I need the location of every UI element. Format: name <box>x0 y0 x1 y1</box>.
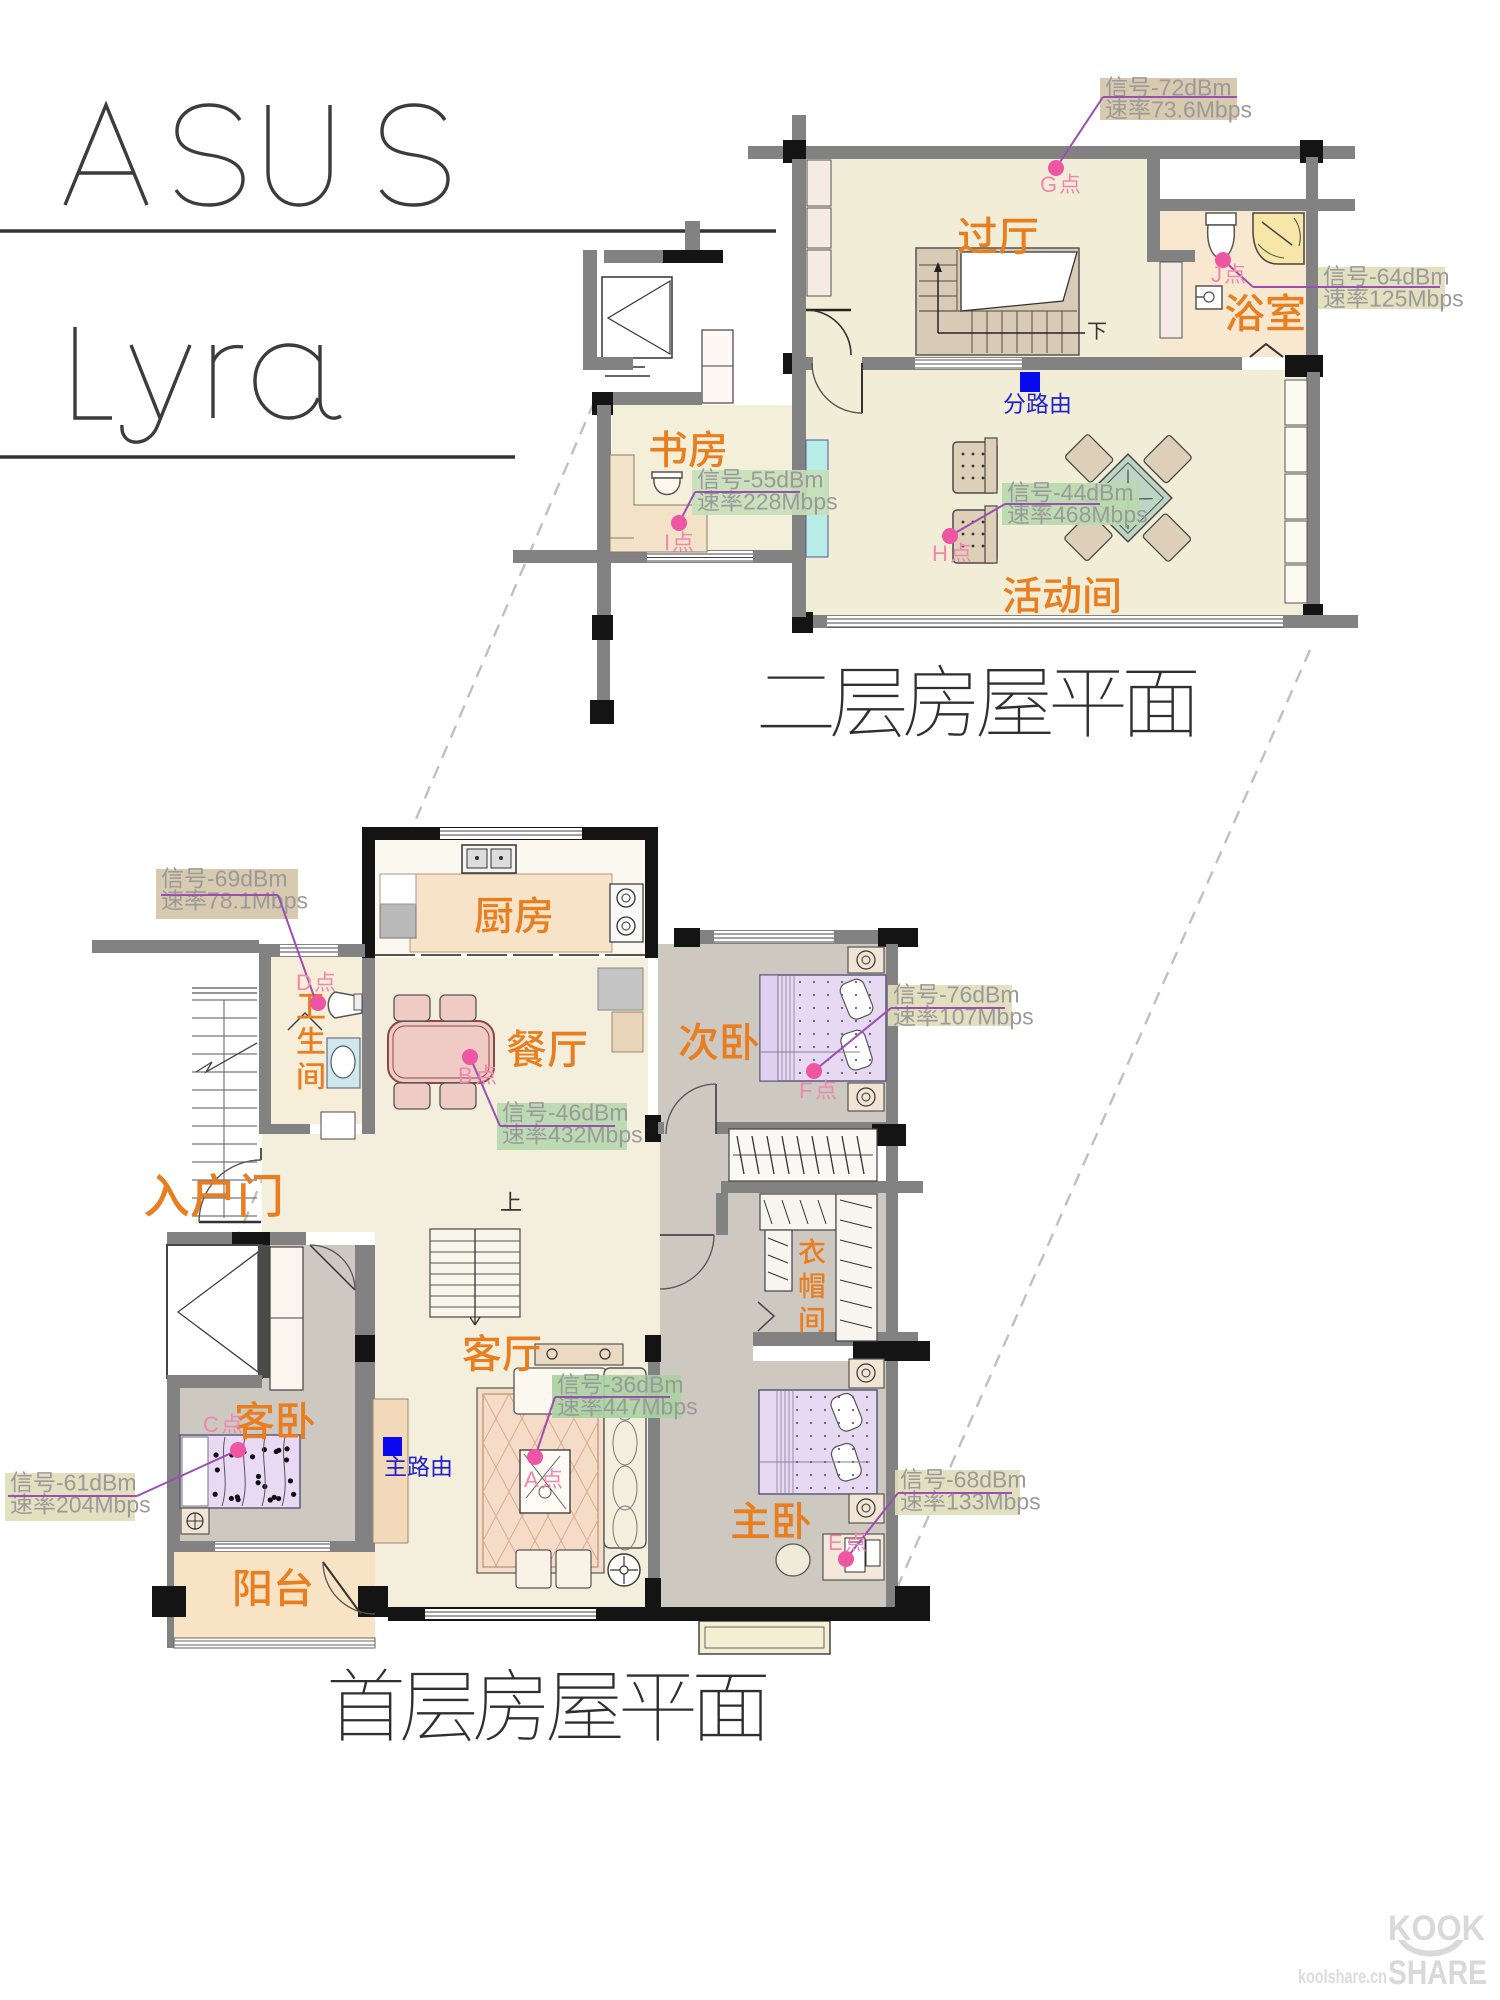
svg-text:468Mbps: 468Mbps <box>1053 502 1148 528</box>
svg-text:125Mbps: 125Mbps <box>1369 286 1464 312</box>
svg-text:B: B <box>458 1063 473 1088</box>
svg-text:78.1Mbps: 78.1Mbps <box>207 888 308 914</box>
svg-text:SHARE: SHARE <box>1388 1954 1487 1992</box>
svg-text:koolshare.cn: koolshare.cn <box>1298 1967 1387 1988</box>
svg-text:G: G <box>1040 172 1057 197</box>
svg-text:F: F <box>799 1078 812 1103</box>
svg-text:I: I <box>664 530 670 555</box>
svg-text:73.6Mbps: 73.6Mbps <box>1151 97 1252 123</box>
svg-text:J: J <box>1211 262 1222 287</box>
svg-text:E: E <box>828 1530 843 1555</box>
svg-text:C: C <box>203 1412 219 1437</box>
svg-text:H: H <box>932 541 948 566</box>
svg-text:A: A <box>524 1467 539 1492</box>
svg-text:D: D <box>296 970 312 995</box>
